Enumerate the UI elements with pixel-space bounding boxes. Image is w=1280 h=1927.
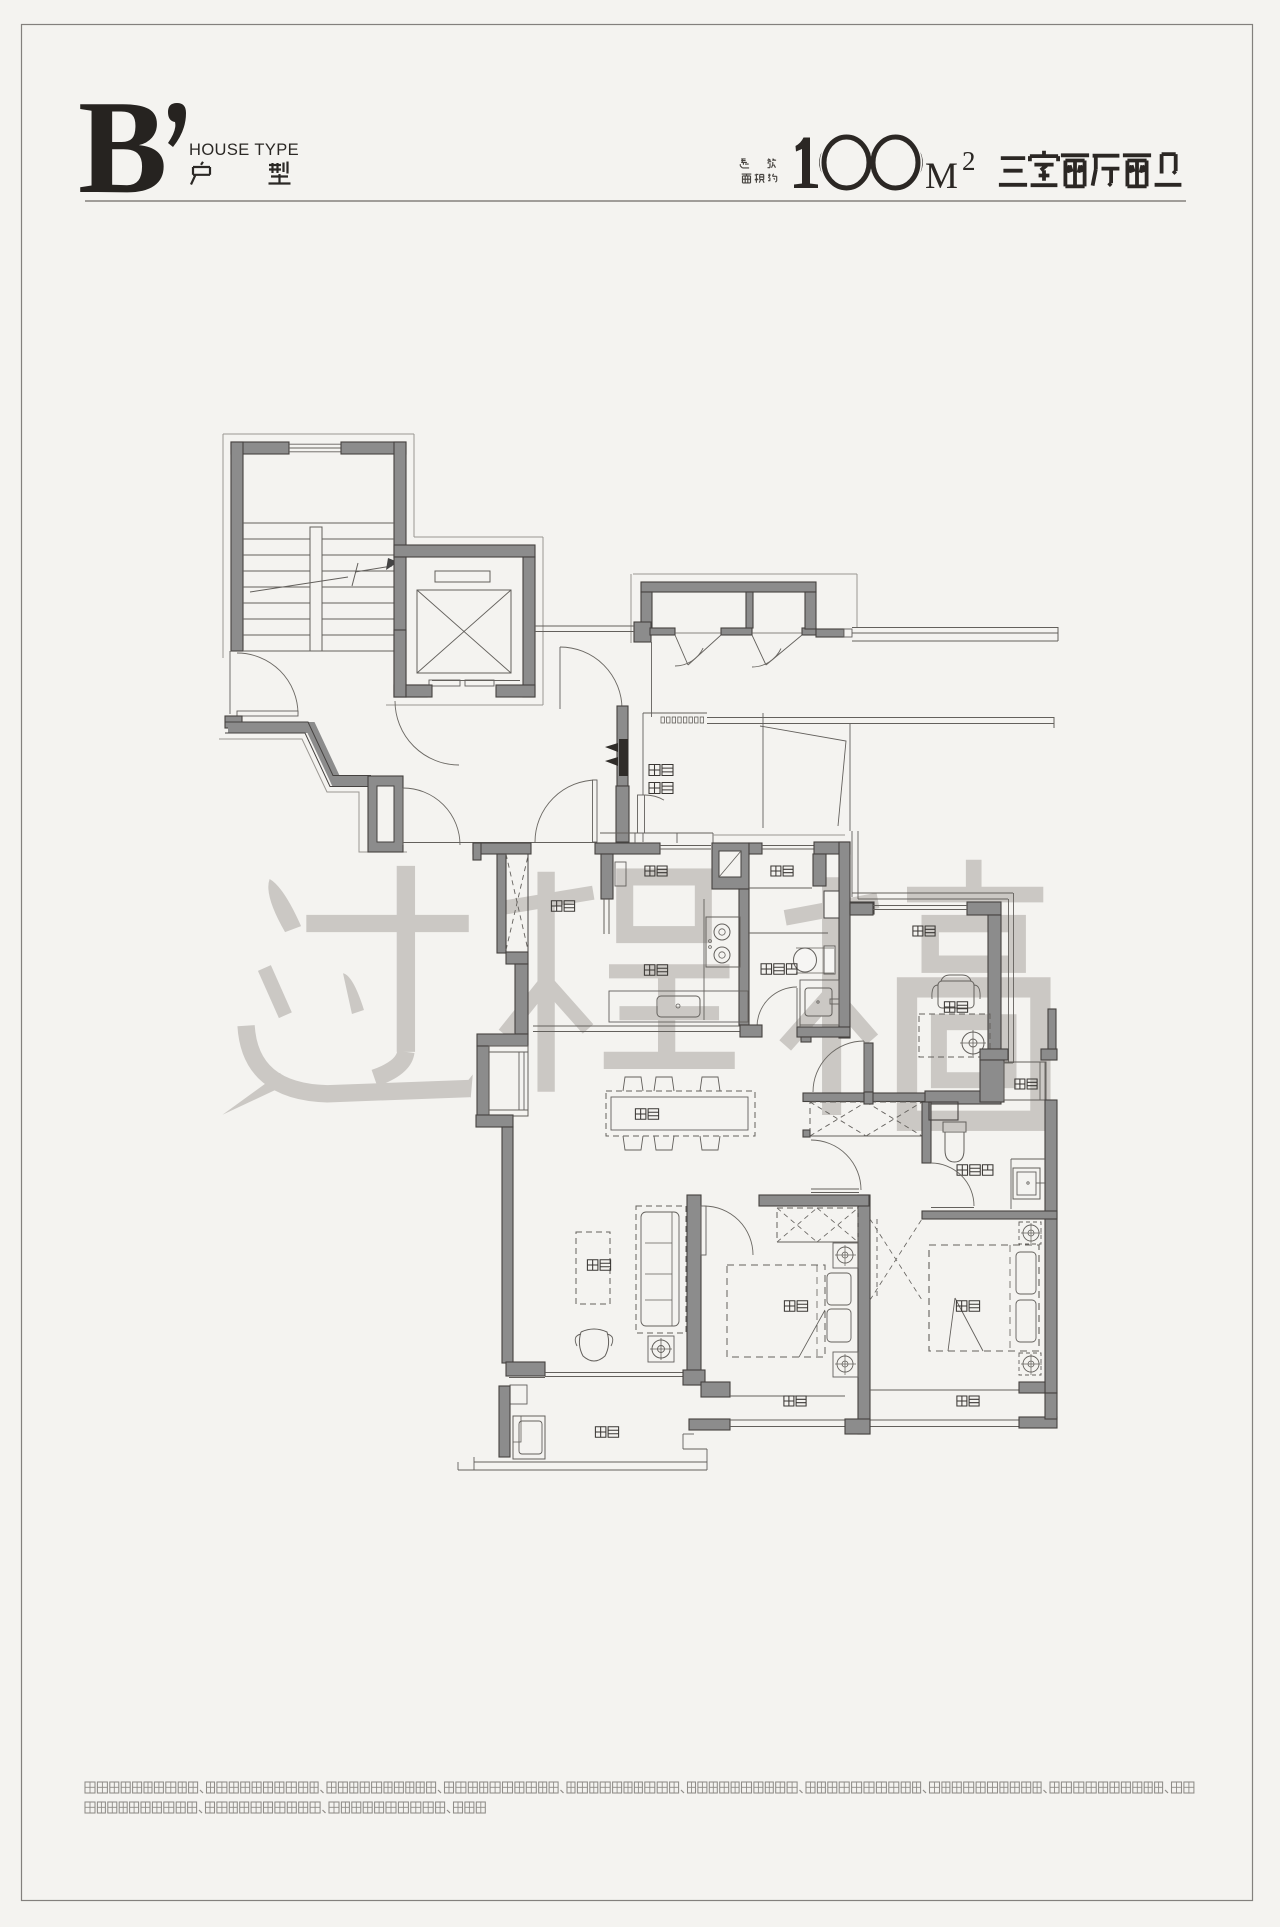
svg-text:B: B: [78, 73, 167, 221]
svg-text:2: 2: [962, 146, 976, 176]
svg-text:HOUSE TYPE: HOUSE TYPE: [189, 141, 299, 159]
svg-text:M: M: [925, 156, 958, 197]
